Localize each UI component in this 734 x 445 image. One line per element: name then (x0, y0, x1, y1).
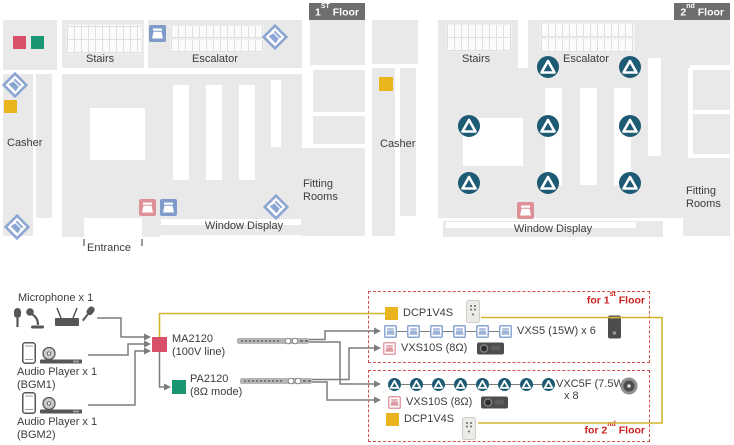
smartphone-icon (22, 342, 36, 364)
store-audio-system-diagram: Window Display Stairs Escalator Casher F… (0, 0, 734, 445)
vxs10s-icon (383, 342, 396, 355)
for-floor2-tag: for 2nd Floor (480, 424, 645, 437)
audio-player1-label: Audio Player x 1 (BGM1) (17, 366, 97, 391)
vxs5-label: VXS5 (15W) x 6 (517, 325, 596, 338)
vxs10s-subwoofer-icon (517, 202, 534, 219)
floor2-plan: Window Display Stairs Escalator Casher F… (367, 0, 734, 262)
ma2120-location-marker (13, 36, 26, 49)
dcp1v4s-marker (385, 307, 398, 320)
dcp1v4s-label: DCP1V4S (404, 413, 454, 426)
floor2-stairs-label: Stairs (462, 53, 490, 66)
ma2120-amplifier-image (237, 337, 309, 345)
floor1-area-room1 (310, 20, 365, 65)
vxc5f-speaker-icon (388, 378, 401, 391)
vxs5-speaker-icon (430, 325, 443, 338)
vxs5-wall-speaker-icon (149, 25, 166, 42)
floor2-window-display-bar: Window Display (443, 221, 663, 237)
pa2120-amplifier-image (240, 377, 312, 385)
escalator-hatch (540, 38, 635, 53)
floor2-window-display-label: Window Display (443, 223, 663, 235)
vxs5-surface-speaker-icon (262, 24, 288, 50)
floor1-plan: Window Display Stairs Escalator Casher F… (0, 0, 367, 262)
floor2-area-room1 (690, 20, 730, 65)
floor1-window-display-label: Window Display (158, 220, 330, 232)
vxs5-surface-speaker-icon (263, 194, 289, 220)
vxc5f-ceiling-speaker-icon (537, 172, 559, 194)
floor2-fitting-rooms-label: Fitting Rooms (686, 185, 734, 211)
vxc5f-count-label: x 8 (564, 390, 579, 403)
vxs5-speaker-icon (499, 325, 512, 338)
floor1-fitting-rooms-label: Fitting Rooms (303, 178, 361, 204)
floor1-badge: 1ST Floor (309, 3, 365, 20)
stairs-hatch (446, 24, 512, 52)
escalator-hatch (170, 39, 264, 53)
floor1-escalator-label: Escalator (192, 53, 238, 66)
vxs5-speaker-icon (384, 325, 397, 338)
dcp1v4s-location-marker (379, 77, 393, 91)
vxs10s-product-image (481, 396, 508, 409)
vxs5-surface-speaker-icon (2, 72, 28, 98)
vxc5f-ceiling-speaker-icon (619, 115, 641, 137)
vxc5f-ceiling-speaker-icon (537, 115, 559, 137)
vxs5-speaker-icon (407, 325, 420, 338)
floor2-area-room2 (693, 70, 730, 110)
vxc5f-speaker-icon (476, 378, 489, 391)
ma2120-label: MA2120 (100V line) (172, 333, 225, 359)
floor2-escalator-label: Escalator (563, 53, 609, 66)
vxs5-surface-speaker-icon (4, 214, 30, 240)
floor1-casher-label: Casher (7, 137, 42, 150)
microphone-source-label: Microphone x 1 (18, 292, 93, 305)
vxs10s-icon (388, 396, 401, 409)
vxs5-speaker-chain (384, 325, 512, 338)
vxs10s-product-image (477, 342, 504, 355)
vxc5f-speaker-icon (410, 378, 423, 391)
dcp1v4s-label: DCP1V4S (403, 307, 453, 320)
floor1-area-topleft (3, 20, 57, 70)
audio-player2-label: Audio Player x 1 (BGM2) (17, 416, 97, 441)
microphone-icons (13, 306, 97, 332)
vxc5f-ceiling-speaker-icon (619, 56, 641, 78)
vxc5f-speaker-icon (432, 378, 445, 391)
floor1-area-room2 (313, 70, 365, 112)
ma2120-marker (152, 337, 167, 352)
vxc5f-product-image (620, 377, 638, 395)
vxs5-wall-speaker-icon (160, 199, 177, 216)
vxc5f-speaker-icon (542, 378, 555, 391)
pa2120-location-marker (31, 36, 44, 49)
floor1-stairs-label: Stairs (86, 53, 114, 66)
dcp1v4s-location-marker (4, 100, 17, 113)
vxs10s-subwoofer-icon (139, 199, 156, 216)
vxc5f-ceiling-speaker-icon (619, 172, 641, 194)
stairs-hatch (66, 24, 142, 54)
pa2120-marker (172, 380, 186, 394)
floor1-area-room3 (313, 116, 365, 144)
floor1-window-display-bar: Window Display (158, 218, 330, 235)
escalator-hatch (540, 23, 635, 38)
vxs10s-label: VXS10S (8Ω) (401, 342, 467, 355)
pa2120-label: PA2120 (8Ω mode) (190, 373, 242, 399)
floor1-entrance-label: Entrance (87, 242, 131, 255)
vxs10s-label: VXS10S (8Ω) (406, 396, 472, 409)
floor2-area-room3 (693, 114, 730, 154)
floor2-casher-label: Casher (380, 138, 415, 151)
floor2-badge: 2nd Floor (674, 3, 730, 20)
vxc5f-speaker-chain (388, 378, 555, 391)
vxc5f-speaker-icon (454, 378, 467, 391)
vxc5f-ceiling-speaker-icon (458, 172, 480, 194)
floor2-area-topleft (372, 20, 418, 64)
dcp1v4s-panel-image (462, 417, 476, 440)
vxc5f-speaker-icon (520, 378, 533, 391)
vxc5f-ceiling-speaker-icon (458, 115, 480, 137)
for-floor1-tag: for 1st Floor (480, 294, 645, 307)
dcp1v4s-panel-image (466, 300, 480, 323)
floor1-area-left-column (3, 74, 33, 236)
vxs5-product-image (607, 315, 622, 339)
floor2-area-left-column (372, 68, 395, 236)
cd-player-icon (40, 347, 86, 364)
vxc5f-speaker-icon (498, 378, 511, 391)
dcp1v4s-marker (386, 413, 399, 426)
vxs5-speaker-icon (476, 325, 489, 338)
vxs5-speaker-icon (453, 325, 466, 338)
vxc5f-ceiling-speaker-icon (537, 56, 559, 78)
smartphone-icon (22, 392, 36, 414)
escalator-hatch (170, 25, 264, 39)
cd-player-icon (40, 397, 86, 414)
